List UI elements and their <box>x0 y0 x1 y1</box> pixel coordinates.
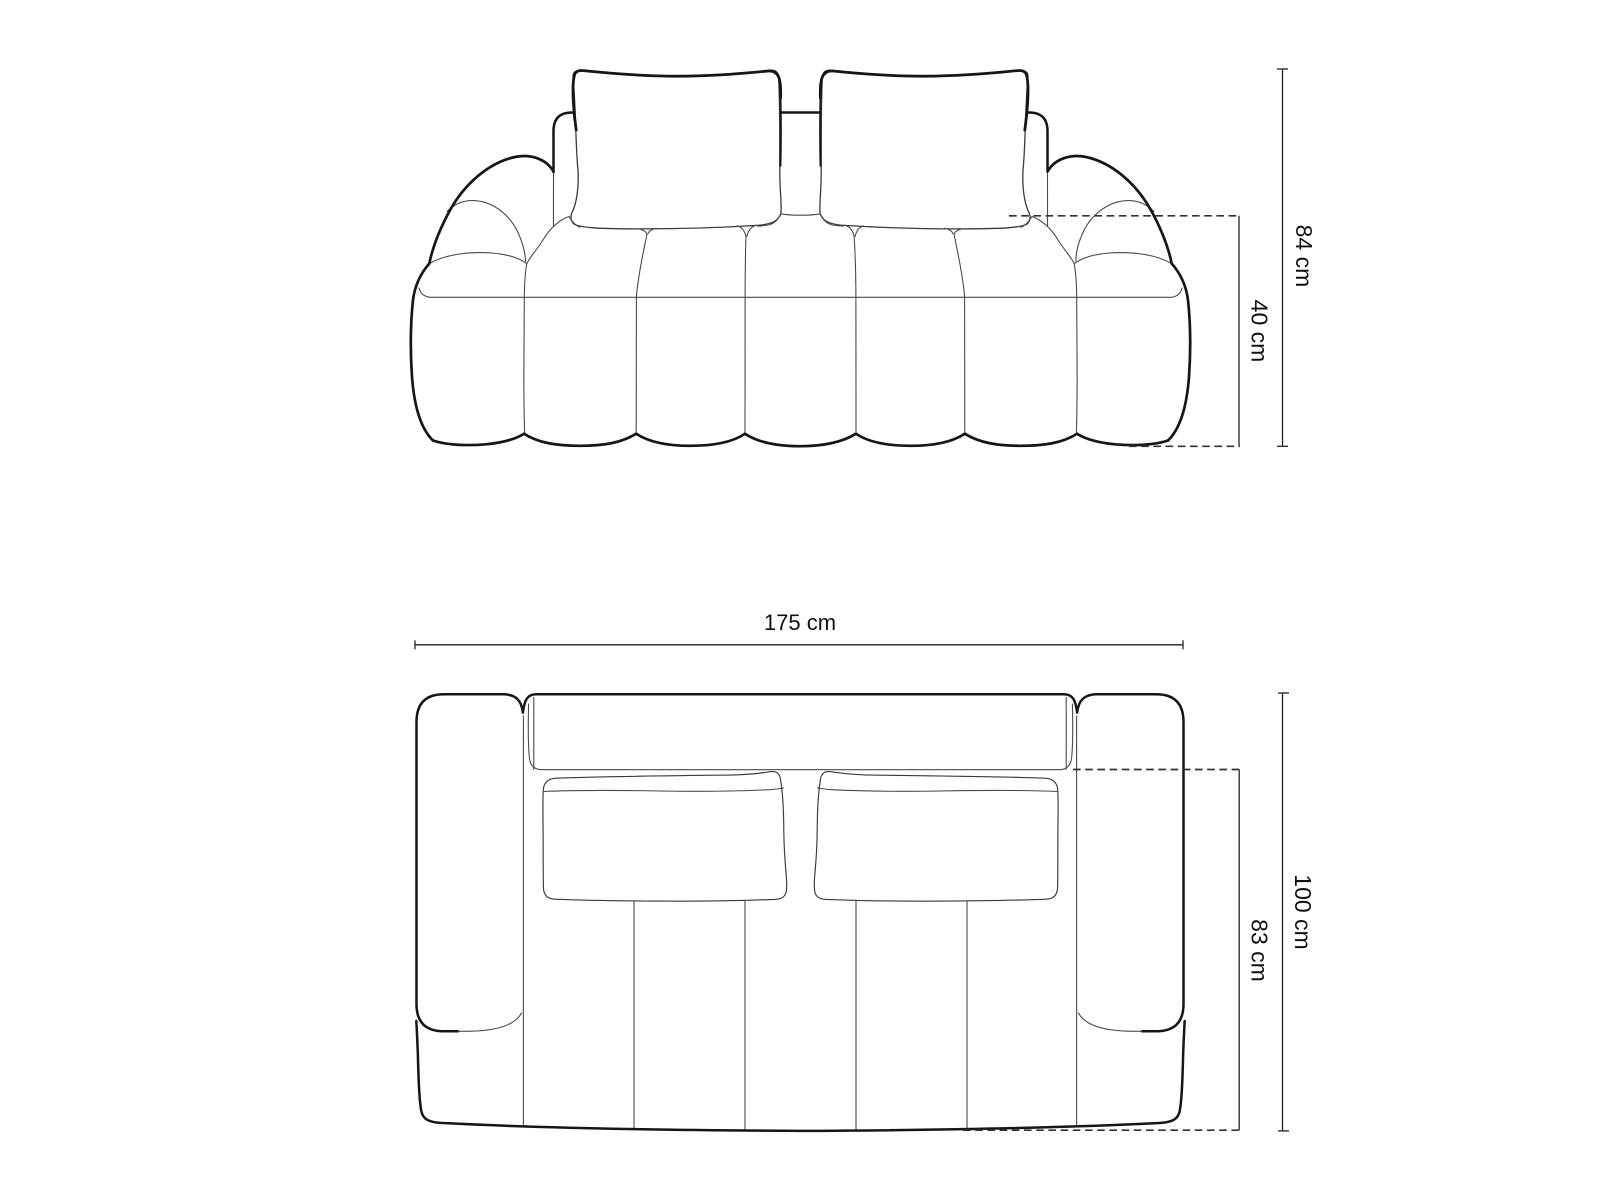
svg-text:83 cm: 83 cm <box>1247 919 1273 982</box>
svg-text:40 cm: 40 cm <box>1247 300 1273 363</box>
svg-text:100 cm: 100 cm <box>1290 874 1316 949</box>
svg-text:84 cm: 84 cm <box>1291 225 1317 288</box>
svg-text:175 cm: 175 cm <box>764 610 836 635</box>
